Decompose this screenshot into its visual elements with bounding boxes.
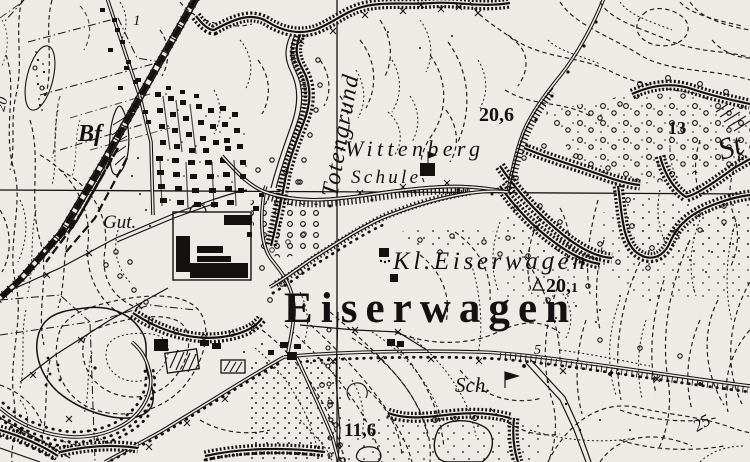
svg-text:Gut.: Gut.: [103, 212, 136, 233]
svg-text:Bf: Bf: [77, 121, 104, 147]
svg-text:13: 13: [668, 118, 686, 138]
svg-text:20,6: 20,6: [479, 104, 514, 126]
svg-text:Eiserwagen: Eiserwagen: [284, 285, 569, 332]
svg-text:5: 5: [534, 343, 541, 358]
svg-text:Sch.: Sch.: [455, 373, 491, 397]
svg-text:1: 1: [133, 13, 141, 29]
svg-text:11,6: 11,6: [344, 420, 376, 441]
